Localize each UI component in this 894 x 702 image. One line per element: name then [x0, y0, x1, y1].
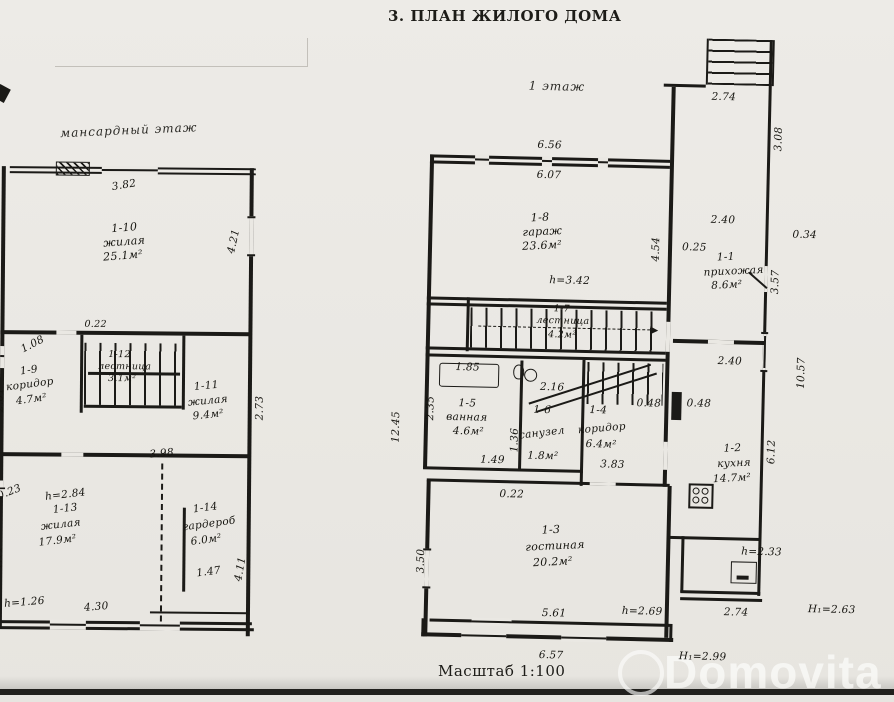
scan-fold-line — [307, 38, 308, 66]
room-id: 1-7 — [554, 303, 570, 314]
room-name: санузел — [518, 424, 565, 441]
dim-label: 10.57 — [795, 357, 808, 389]
dim-label: 0.22 — [499, 488, 524, 501]
wall — [84, 405, 182, 409]
room-id: 1-12 — [108, 349, 131, 360]
dim-label: 2.16 — [540, 381, 565, 394]
door-gap — [708, 340, 734, 345]
wall — [421, 618, 424, 636]
room-area: 9.4м² — [192, 407, 224, 422]
room-height-note: h=3.42 — [549, 274, 590, 287]
chimney-block — [56, 162, 90, 176]
stove-burner-icon — [692, 496, 699, 503]
dim-label: 2.35 — [424, 396, 437, 421]
room-name: ванная — [446, 411, 487, 424]
room-area: 3.1м² — [108, 373, 136, 384]
dim-label: 2.40 — [717, 355, 742, 368]
room-area: 20.2м² — [533, 554, 573, 569]
wall — [669, 624, 672, 642]
dim-label: 12.45 — [390, 411, 403, 443]
dim-label: 1.85 — [455, 361, 480, 374]
room-name: гостиная — [525, 538, 585, 554]
dim-label: 0.48 — [636, 397, 661, 410]
dim-label: 0.34 — [792, 229, 817, 242]
door-gap — [666, 322, 671, 352]
dim-label: 1.36 — [508, 428, 521, 453]
wall — [430, 618, 670, 626]
wall — [663, 87, 676, 487]
room-name: гараж — [522, 224, 562, 239]
attic-floor-plan: мансардный этаж 1- — [0, 150, 274, 652]
first-floor-plan: 1 этаж — [400, 28, 835, 682]
boiler-detail — [737, 575, 749, 579]
room-id: 1-9 — [19, 363, 38, 377]
dim-label: 3.08 — [772, 127, 785, 152]
dim-label: h=2.69 — [622, 605, 663, 618]
wall — [0, 620, 252, 625]
dim-label: 3.83 — [600, 458, 625, 471]
room-id: 1-2 — [723, 442, 741, 455]
room-area: 4.7м² — [15, 391, 47, 407]
dim-label: 1.49 — [480, 454, 505, 467]
dim-label: 5.61 — [542, 607, 567, 620]
stove-burner-icon — [701, 497, 708, 504]
dim-label: 2.40 — [711, 214, 736, 227]
room-name: коридор — [5, 375, 54, 393]
toilet-icon — [513, 364, 524, 379]
room-area: 1.8м² — [527, 450, 558, 463]
window-line — [542, 160, 552, 162]
dim-label: 1.47 — [196, 564, 222, 579]
room-area: 23.6м² — [522, 238, 562, 253]
wall — [427, 478, 670, 487]
room-name: лестница — [536, 315, 589, 327]
room-area: 6.4м² — [585, 438, 616, 451]
room-area: 17.9м² — [38, 532, 77, 548]
stove-icon — [688, 483, 714, 509]
dim-label: 3.50 — [415, 549, 428, 574]
room-id: 1-11 — [193, 379, 219, 393]
wall — [680, 590, 760, 595]
dim-label: 6.07 — [537, 169, 562, 182]
room-name: кухня — [717, 457, 751, 471]
stove-burner-icon — [692, 487, 699, 494]
room-id: 1-5 — [458, 397, 476, 409]
dim-label: h=1.26 — [4, 595, 46, 610]
wall-pilaster — [671, 392, 682, 420]
dim-label: 4.11 — [0, 545, 5, 570]
dim-label: 6.57 — [539, 649, 564, 662]
door-gap — [663, 442, 668, 470]
scanned-floor-plan-page: 3. ПЛАН ЖИЛОГО ДОМА Масштаб 1:100 Domovi… — [0, 0, 894, 702]
dim-label: 4.54 — [650, 237, 663, 262]
window-line — [422, 586, 430, 588]
stairs-direction-arrow-icon — [650, 326, 658, 334]
wall — [423, 466, 583, 473]
stove-burner-icon — [701, 488, 708, 495]
window-line — [50, 624, 86, 626]
window-gap — [249, 216, 253, 256]
door-gap — [590, 482, 616, 486]
entrance-steps — [706, 39, 775, 87]
dim-label: 3.82 — [111, 177, 137, 193]
dim-label: 2.74 — [724, 606, 749, 619]
attic-floor-label: мансардный этаж — [60, 120, 198, 140]
room-id: 1-4 — [589, 404, 607, 416]
dim-label: 2.01 — [0, 387, 6, 412]
room-name: гардероб — [182, 514, 236, 533]
room-id: 1-1 — [717, 251, 735, 264]
room-area: 14.7м² — [713, 471, 752, 485]
scan-fold-line — [55, 66, 308, 67]
room-area: 25.1м² — [103, 248, 144, 264]
room-name: лестница — [98, 361, 151, 372]
dim-label: h=2.33 — [741, 546, 782, 559]
wall — [421, 632, 673, 641]
page-title: 3. ПЛАН ЖИЛОГО ДОМА — [388, 7, 621, 25]
room-area: 8.6м² — [711, 278, 743, 291]
wall — [664, 486, 671, 638]
window-line — [475, 158, 489, 160]
wall — [680, 536, 684, 592]
door-gap — [61, 453, 83, 457]
room-name: коридор — [578, 420, 627, 436]
window-line — [247, 216, 255, 218]
window-line — [598, 161, 608, 163]
partition-dashed — [160, 463, 163, 621]
dim-label: 3.57 — [769, 270, 782, 295]
dim-label: 4.21 — [225, 228, 242, 255]
dim-label: 2.73 — [254, 396, 266, 421]
dim-label: Н₁=2.63 — [808, 603, 856, 616]
window-line — [0, 355, 4, 357]
room-area: 4.6м² — [453, 425, 484, 438]
room-id: 1-10 — [111, 220, 138, 235]
dim-label: 0.23 — [0, 482, 23, 502]
wall — [757, 40, 773, 596]
door-gap — [0, 346, 4, 368]
window-line — [247, 254, 255, 256]
wall — [680, 597, 762, 601]
dim-label: 6.56 — [537, 139, 562, 152]
wall — [150, 611, 248, 614]
room-id: 1-3 — [541, 523, 560, 537]
room-name: жилая — [187, 393, 228, 409]
scan-ink-mark — [0, 84, 11, 103]
room-area: 6.0м² — [190, 532, 222, 548]
room-name: жилая — [40, 516, 81, 532]
room-area: 4.2м² — [548, 329, 577, 341]
wall — [423, 154, 434, 468]
dim-label: 0.22 — [84, 319, 106, 330]
wall — [0, 452, 249, 458]
room-id: 1-13 — [52, 501, 78, 516]
dim-label: Н₁=2.99 — [679, 650, 727, 663]
door-gap — [56, 331, 76, 335]
window-line — [760, 370, 767, 372]
window-line — [761, 332, 768, 334]
dim-label: 1.08 — [19, 333, 46, 355]
dim-label: 6.12 — [765, 439, 778, 464]
sink-icon — [524, 369, 537, 382]
room-id: 1-14 — [192, 500, 218, 515]
dim-label: 3.98 — [149, 446, 175, 460]
dim-label: 0.48 — [686, 397, 711, 410]
wall — [664, 84, 706, 88]
first-floor-label: 1 этаж — [529, 79, 586, 94]
room-id: 1-6 — [533, 404, 551, 416]
dim-label: 0.25 — [682, 241, 707, 254]
room-height-note: h=2.84 — [44, 486, 86, 503]
boiler-icon — [730, 561, 756, 584]
dim-label: 2.74 — [711, 91, 736, 104]
dim-label: 4.30 — [84, 600, 109, 614]
room-id: 1-8 — [530, 210, 549, 224]
wall — [0, 626, 254, 631]
